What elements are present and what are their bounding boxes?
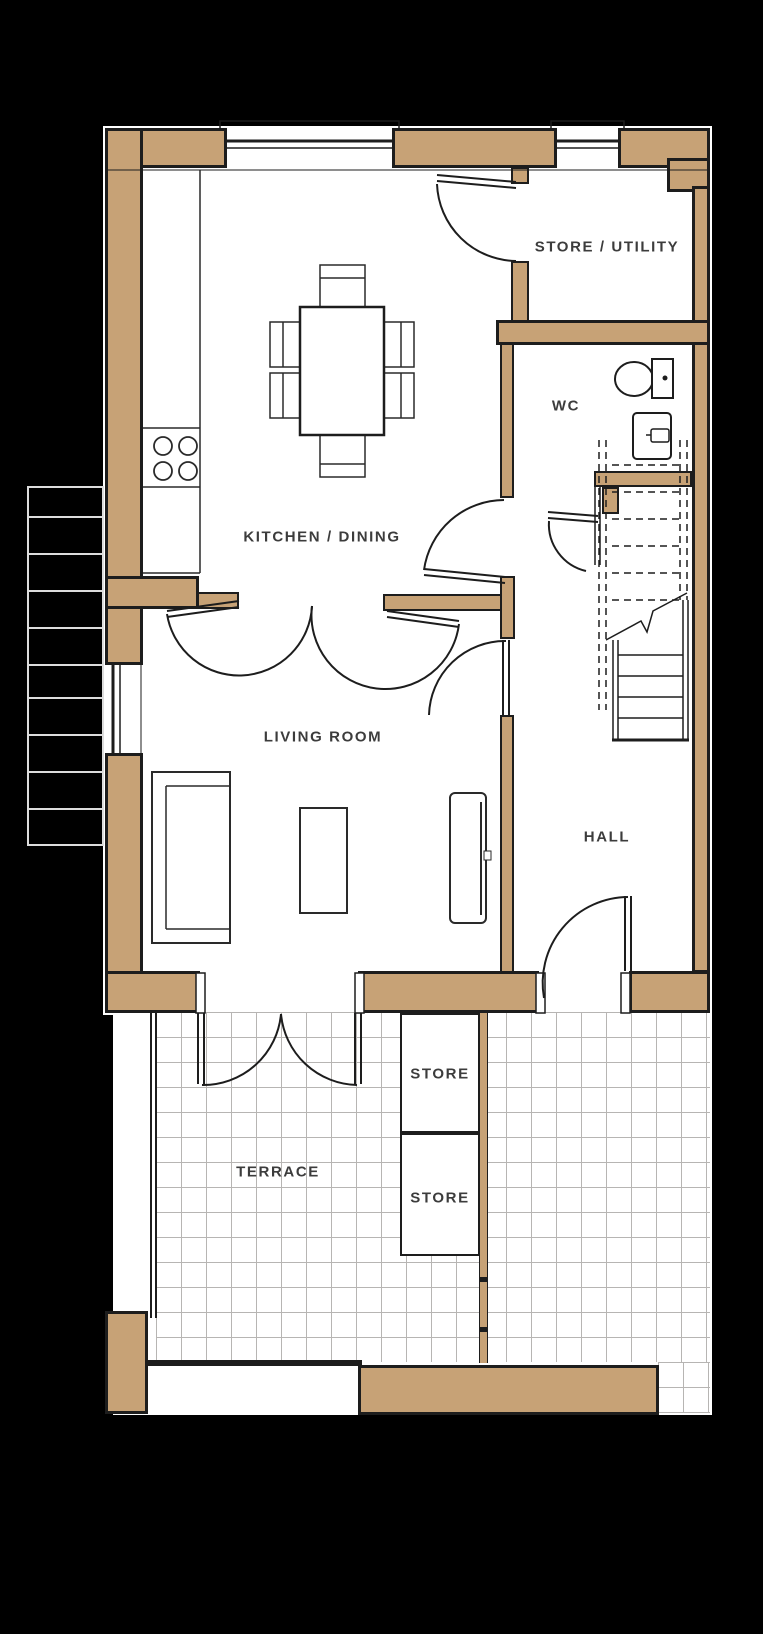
stair-newel: [602, 487, 619, 514]
wall-wc-left: [500, 343, 514, 498]
room-label-wc: WC: [552, 398, 580, 415]
wall-hall-divider: [500, 715, 514, 973]
wall-top-mid: [392, 128, 557, 168]
divider-joint: [479, 1327, 488, 1332]
wall-storeutility-wc: [496, 320, 710, 345]
room-label-hall: HALL: [584, 829, 630, 846]
wall-right: [692, 186, 710, 973]
terrace-left-fence: [150, 1013, 157, 1318]
wall-bottom-living: [105, 971, 200, 1013]
room-label-store-lower: STORE: [410, 1190, 469, 1207]
wall-stair-top: [594, 471, 692, 487]
room-label-living-room: LIVING ROOM: [264, 729, 382, 746]
terrace-bottom-fence: [148, 1360, 362, 1366]
wall-stub-horizontal: [383, 594, 504, 611]
terrace-divider-wall: [479, 1013, 488, 1363]
room-label-store-upper: STORE: [410, 1066, 469, 1083]
path-paving: [658, 1362, 710, 1413]
interior-floor: [103, 126, 712, 1015]
terrace-bottom-wall: [358, 1365, 659, 1415]
room-label-terrace: TERRACE: [236, 1164, 320, 1181]
wall-kitchen-living-b: [197, 592, 239, 609]
divider-joint: [479, 1277, 488, 1282]
wall-storeutility-hinge-block: [511, 167, 529, 184]
wall-bottom-mid: [358, 971, 539, 1013]
floor-plan: STORE / UTILITY WC KITCHEN / DINING LIVI…: [0, 0, 763, 1634]
wall-stub-vertical: [500, 576, 515, 639]
external-steps: [28, 487, 103, 845]
terrace-post: [105, 1311, 148, 1414]
wall-bottom-entry: [629, 971, 710, 1013]
room-label-kitchen-dining: KITCHEN / DINING: [243, 529, 400, 546]
room-label-store-utility: STORE / UTILITY: [535, 239, 680, 256]
wall-kitchen-living-a: [105, 576, 199, 609]
